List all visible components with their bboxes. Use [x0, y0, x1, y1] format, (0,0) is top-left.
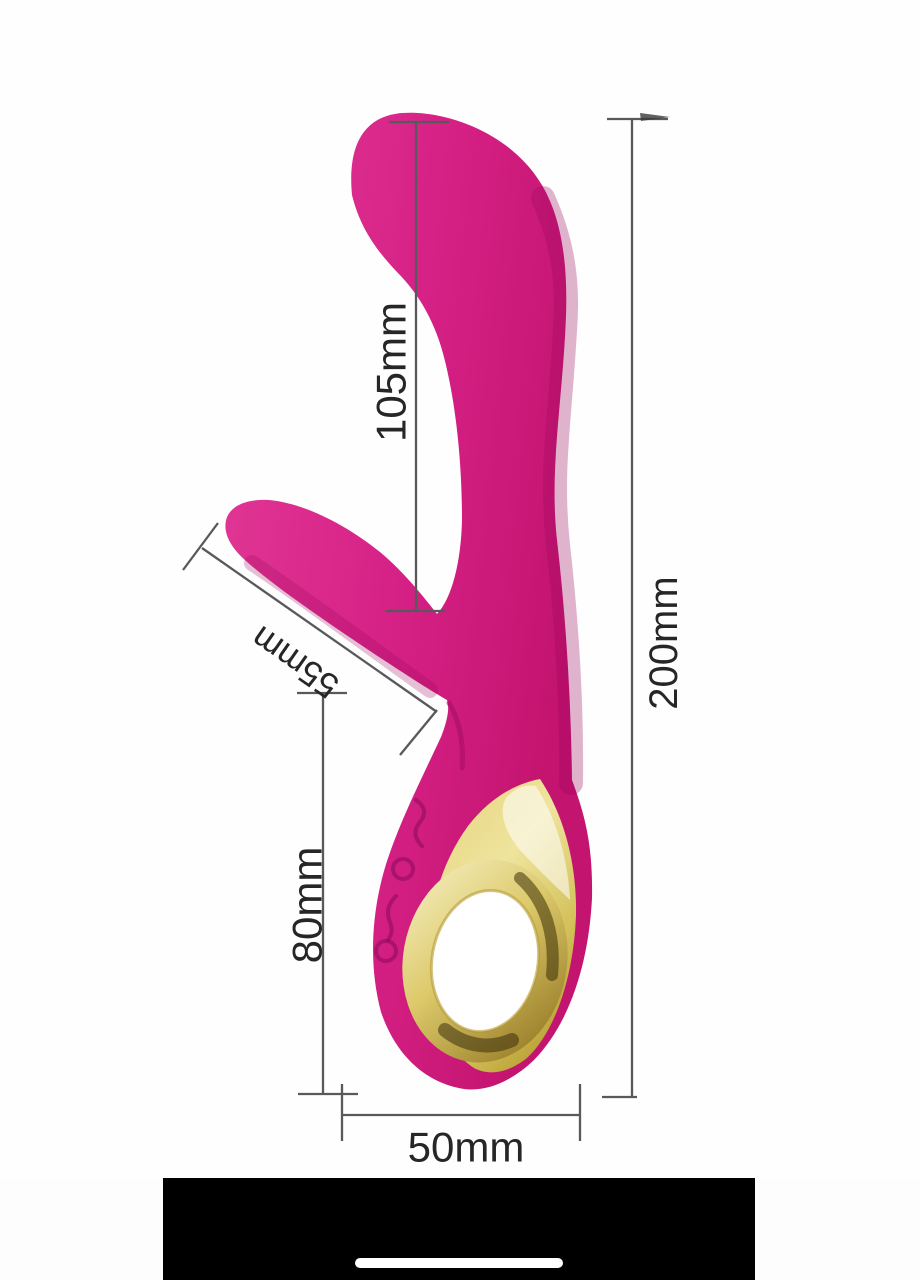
dim-label-handle-length: 80mm — [284, 847, 331, 964]
product-photo-area: 105mm 200mm 55mm 80mm 50mm — [0, 0, 920, 1180]
dim-55-tick-end — [400, 710, 437, 755]
dim-label-total-length: 200mm — [642, 576, 686, 709]
dimension-diagram: 105mm 200mm 55mm 80mm 50mm — [0, 0, 920, 1180]
dim-label-base-width: 50mm — [408, 1124, 525, 1171]
home-indicator[interactable] — [355, 1258, 563, 1268]
dim-55-tick-start — [183, 523, 218, 570]
system-bottom-bar — [163, 1178, 755, 1280]
dim-label-shaft-length: 105mm — [368, 302, 415, 442]
dim-label-arm-length: 55mm — [244, 618, 346, 706]
